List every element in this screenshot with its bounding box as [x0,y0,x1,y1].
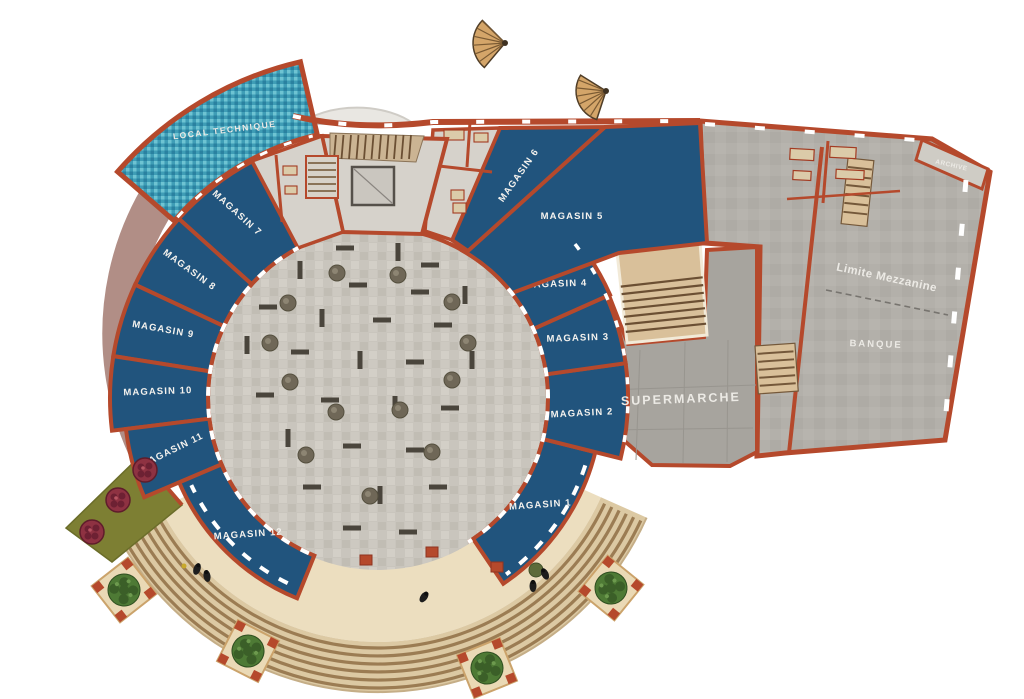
label-banque: BANQUE [849,338,903,351]
plaza-bench [256,393,274,398]
person-figure [530,580,537,592]
plaza-bench [434,323,452,328]
plaza-bench [358,351,363,369]
plaza-bench [298,261,303,279]
red-planter-box [360,555,372,565]
plaza-bench [259,305,277,310]
rose-bush [106,488,130,512]
plaza-bench [343,526,361,531]
red-planter-box [491,562,503,572]
label-magasin-5: MAGASIN 5 [541,211,604,222]
plaza-bench [463,286,468,304]
plaza-bench [291,350,309,355]
west-switchback-stair [306,156,338,198]
floor-plan-canvas: MAGASIN 7MAGASIN 8MAGASIN 9MAGASIN 10MAG… [0,0,1024,699]
plaza-bench [441,406,459,411]
plaza-bench [343,444,361,449]
plaza-bench [470,351,475,369]
plaza-bench [411,290,429,295]
plaza-bench [396,243,401,261]
walkway-tree [529,563,543,577]
plaza-bench [429,485,447,490]
plaza-bench [303,485,321,490]
label-magasin-3: MAGASIN 3 [546,332,609,345]
yellow-dot [182,564,187,569]
plaza-bench [399,530,417,535]
plaza-bench [321,398,339,403]
plaza-bench [349,283,367,288]
spiral-stair-fan [576,75,609,119]
plaza-bench [373,318,391,323]
red-planter-box [426,547,438,557]
spiral-stair-fan [473,20,508,67]
rose-bush [133,458,157,482]
plaza-bench [286,429,291,447]
plaza-bench [406,448,424,453]
plaza-bench [245,336,250,354]
plaza-bench [336,246,354,251]
main-escalator [617,242,707,343]
rose-bush [80,520,104,544]
supermarket-stair [755,343,798,394]
plaza-bench [421,263,439,268]
plaza-bench [320,309,325,327]
plaza-bench [406,360,424,365]
